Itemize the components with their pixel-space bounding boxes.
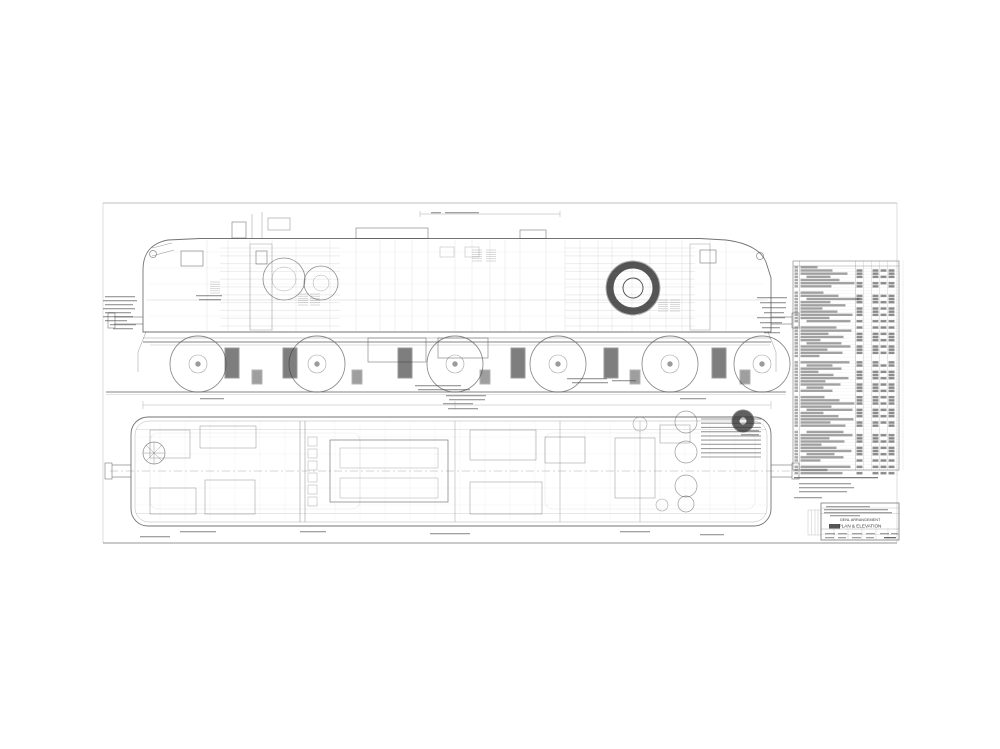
- top-dimension-line: [420, 211, 560, 217]
- illegible-text-strips: [103, 212, 898, 538]
- cab-window: [181, 251, 203, 266]
- overall-dimension-line: [143, 401, 771, 409]
- plan-body-outline: [131, 417, 771, 526]
- title-view-text: PLAN & ELEVATION: [839, 524, 882, 529]
- locomotive-general-arrangement-drawing: GENL ARRANGEMENT PLAN & ELEVATION: [0, 0, 1000, 749]
- headlight-left: [150, 251, 157, 258]
- revision-table: [808, 510, 821, 535]
- door-window: [256, 251, 267, 264]
- battery-box: [438, 338, 488, 358]
- fan-circle-stack: [675, 411, 697, 512]
- cylinder-row: [308, 437, 317, 506]
- side-elevation-view: [106, 211, 799, 409]
- radiator-fan: [606, 261, 660, 315]
- cab-fan: [143, 442, 165, 464]
- scanned-blueprint-page: GENL ARRANGEMENT PLAN & ELEVATION: [0, 0, 1000, 749]
- truck-wheels: [170, 336, 790, 392]
- parts-list-table: [793, 261, 899, 474]
- plan-view: [105, 410, 799, 526]
- title-arrangement-text: GENL ARRANGEMENT: [840, 518, 881, 522]
- parts-list-rows: [793, 267, 899, 475]
- sheet-border: [103, 203, 903, 543]
- title-block: GENL ARRANGEMENT PLAN & ELEVATION: [808, 503, 899, 540]
- body-panel-lines: [207, 240, 726, 331]
- hatch-regions: [220, 248, 761, 457]
